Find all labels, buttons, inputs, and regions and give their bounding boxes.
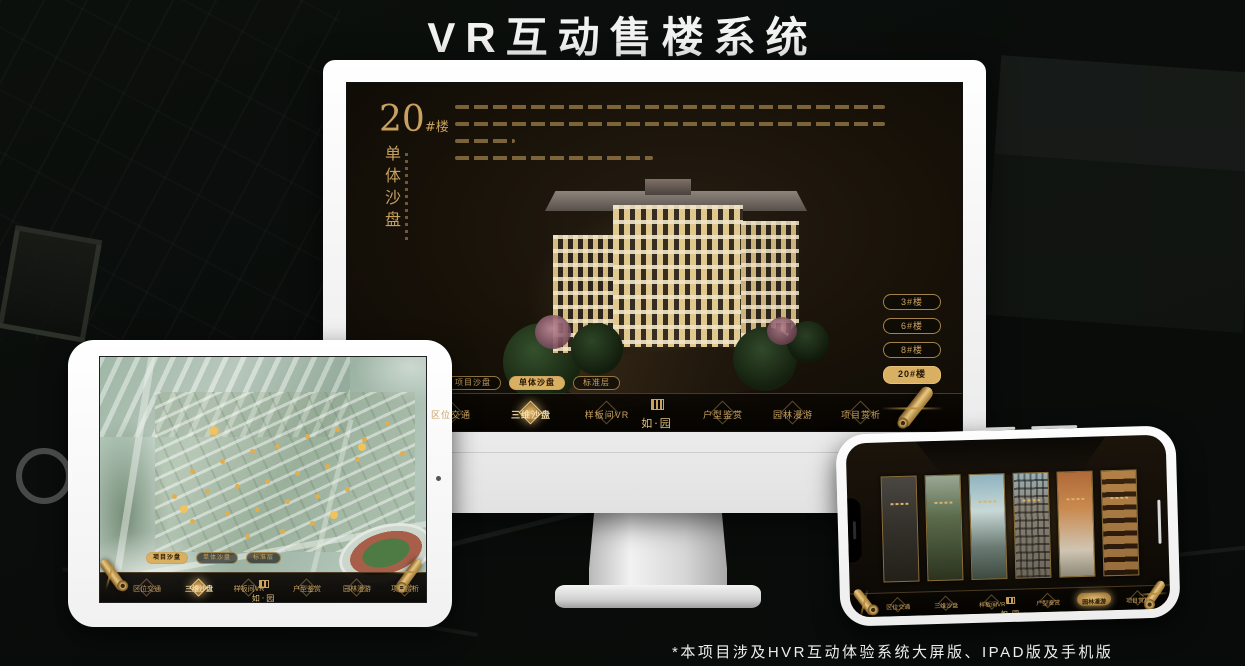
phone-speaker — [853, 521, 857, 539]
nav-item-project-gallery[interactable]: 项目赏析 — [829, 394, 893, 431]
description-line — [455, 156, 653, 160]
nav-label: 园林漫游 — [773, 408, 813, 421]
nav-item-garden-tour[interactable]: 园林漫游 — [1074, 587, 1115, 611]
headline-subtitle: 单体沙盘 — [379, 145, 403, 265]
description-line — [455, 105, 885, 109]
building-roof-cap — [645, 179, 691, 195]
building-number-suffix: #楼 — [425, 120, 449, 135]
building-button-8[interactable]: 8#楼 — [883, 342, 941, 358]
gallery-panel-landscape[interactable] — [969, 473, 1008, 580]
nav-item-3d-sandtable[interactable]: 三维沙盘 — [499, 394, 563, 431]
background-photo — [983, 55, 1245, 333]
mode-tab-project-sandtable[interactable]: 项目沙盘 — [146, 552, 188, 564]
nav-label: 户型鉴赏 — [293, 584, 321, 594]
panel-title — [978, 500, 996, 503]
nav-label: 区位交通 — [431, 408, 471, 421]
mode-tab-standard-floor[interactable]: 标准层 — [573, 376, 620, 390]
phone-screen: 区位交通 三维沙盘 样板间VR 如·园 户型鉴赏 — [846, 435, 1171, 618]
home-indicator[interactable] — [1157, 500, 1161, 544]
monitor-mode-tabs: 项目沙盘 单体沙盘 标准层 — [445, 376, 620, 390]
background-plaque — [0, 225, 102, 343]
panel-title — [934, 502, 952, 505]
logo-text: 如·园 — [635, 415, 679, 431]
nav-item-garden-tour[interactable]: 园林漫游 — [334, 573, 380, 602]
gallery-panel-building[interactable] — [1013, 472, 1052, 579]
seal-icon — [651, 399, 664, 410]
nav-item-traffic[interactable]: 区位交通 — [124, 573, 170, 602]
nav-label: 样板间VR — [979, 599, 1006, 609]
monitor-stand — [589, 508, 727, 592]
tablet-screen: 项目沙盘 单体沙盘 标准层 区位交通 三维沙盘 样板间VR — [100, 357, 426, 602]
building-button-6[interactable]: 6#楼 — [883, 318, 941, 334]
gallery-panels — [881, 469, 1140, 582]
phone-power-button — [1031, 425, 1077, 429]
monitor-base — [555, 585, 761, 608]
mode-tab-project-sandtable[interactable]: 项目沙盘 — [445, 376, 501, 390]
nav-label: 样板间VR — [585, 408, 630, 421]
nav-label: 项目赏析 — [391, 584, 419, 594]
nav-label: 园林漫游 — [1082, 596, 1106, 606]
nav-item-3d-sandtable[interactable]: 三维沙盘 — [926, 591, 967, 615]
building-number: 20 — [379, 99, 425, 140]
headline-subtitle-english — [405, 153, 408, 243]
seal-icon — [1005, 597, 1014, 604]
mode-tab-single-sandtable[interactable]: 单体沙盘 — [196, 552, 238, 564]
nav-item-floorplans[interactable]: 户型鉴赏 — [1028, 588, 1069, 612]
building-number-badges-highlight[interactable] — [210, 427, 218, 435]
blossom-tree — [535, 315, 571, 349]
building-button-3[interactable]: 3#楼 — [883, 294, 941, 310]
nav-label: 三维沙盘 — [185, 584, 213, 594]
phone-device: 区位交通 三维沙盘 样板间VR 如·园 户型鉴赏 — [835, 425, 1180, 626]
nav-label: 样板间VR — [234, 584, 265, 594]
nav-label: 园林漫游 — [343, 584, 371, 594]
background-ring — [16, 448, 72, 504]
phone-volume-button — [985, 427, 1015, 431]
panel-title — [1022, 499, 1040, 502]
mode-tab-standard-floor[interactable]: 标准层 — [246, 552, 281, 564]
building-headline: 20#楼 单体沙盘 — [379, 103, 449, 265]
blossom-tree — [767, 317, 797, 345]
nav-label: 项目赏析 — [841, 408, 881, 421]
description-line — [455, 139, 515, 143]
panel-title — [890, 503, 908, 506]
footnote: *本项目涉及HVR互动体验系统大屏版、IPAD版及手机版 — [672, 641, 1113, 662]
tablet-device: 项目沙盘 单体沙盘 标准层 区位交通 三维沙盘 样板间VR — [68, 340, 452, 627]
nav-item-showroom-vr[interactable]: 样板间VR — [575, 394, 639, 431]
nav-label: 三维沙盘 — [511, 408, 551, 421]
tablet-camera — [436, 476, 441, 481]
nav-item-floorplans[interactable]: 户型鉴赏 — [691, 394, 755, 431]
building-button-20[interactable]: 20#楼 — [883, 366, 941, 384]
gallery-panel-courtyard[interactable] — [881, 476, 920, 583]
building-body — [613, 205, 743, 347]
logo-text: 如·园 — [995, 609, 1025, 618]
nav-item-3d-sandtable[interactable]: 三维沙盘 — [176, 573, 222, 602]
nav-label: 区位交通 — [133, 584, 161, 594]
poster: VR互动售楼系统 20#楼 单体沙盘 — [0, 0, 1245, 666]
building-selector: 3#楼 6#楼 8#楼 20#楼 — [883, 294, 941, 392]
nav-item-garden-tour[interactable]: 园林漫游 — [761, 394, 825, 431]
gallery-panel-garden[interactable] — [925, 474, 964, 581]
nav-label: 户型鉴赏 — [1036, 598, 1060, 608]
page-title: VR互动售楼系统 — [0, 4, 1245, 65]
brand-logo: 如·园 — [635, 397, 679, 431]
nav-item-traffic[interactable]: 区位交通 — [878, 593, 919, 617]
logo-text: 如·园 — [246, 593, 282, 602]
tablet-mode-tabs: 项目沙盘 单体沙盘 标准层 — [146, 552, 281, 564]
tablet-navbar: 区位交通 三维沙盘 样板间VR 如·园 户型鉴赏 — [100, 572, 426, 602]
mode-tab-single-sandtable[interactable]: 单体沙盘 — [509, 376, 565, 390]
cloud-fog — [350, 357, 426, 407]
description-line — [455, 122, 885, 126]
gallery-panel-interior[interactable] — [1100, 469, 1139, 576]
building-number-badges[interactable] — [250, 449, 255, 454]
panel-title — [1110, 497, 1128, 500]
nav-label: 户型鉴赏 — [703, 408, 743, 421]
nav-label: 区位交通 — [886, 602, 910, 612]
panel-title — [1066, 498, 1084, 501]
nav-label: 三维沙盘 — [934, 600, 958, 610]
phone-navbar: 区位交通 三维沙盘 样板间VR 如·园 户型鉴赏 — [850, 585, 1171, 618]
gallery-panel-autumn[interactable] — [1057, 471, 1096, 578]
tree — [571, 323, 623, 375]
nav-item-floorplans[interactable]: 户型鉴赏 — [284, 573, 330, 602]
building-render[interactable] — [475, 161, 825, 411]
nav-label: 项目赏析 — [1126, 595, 1150, 605]
